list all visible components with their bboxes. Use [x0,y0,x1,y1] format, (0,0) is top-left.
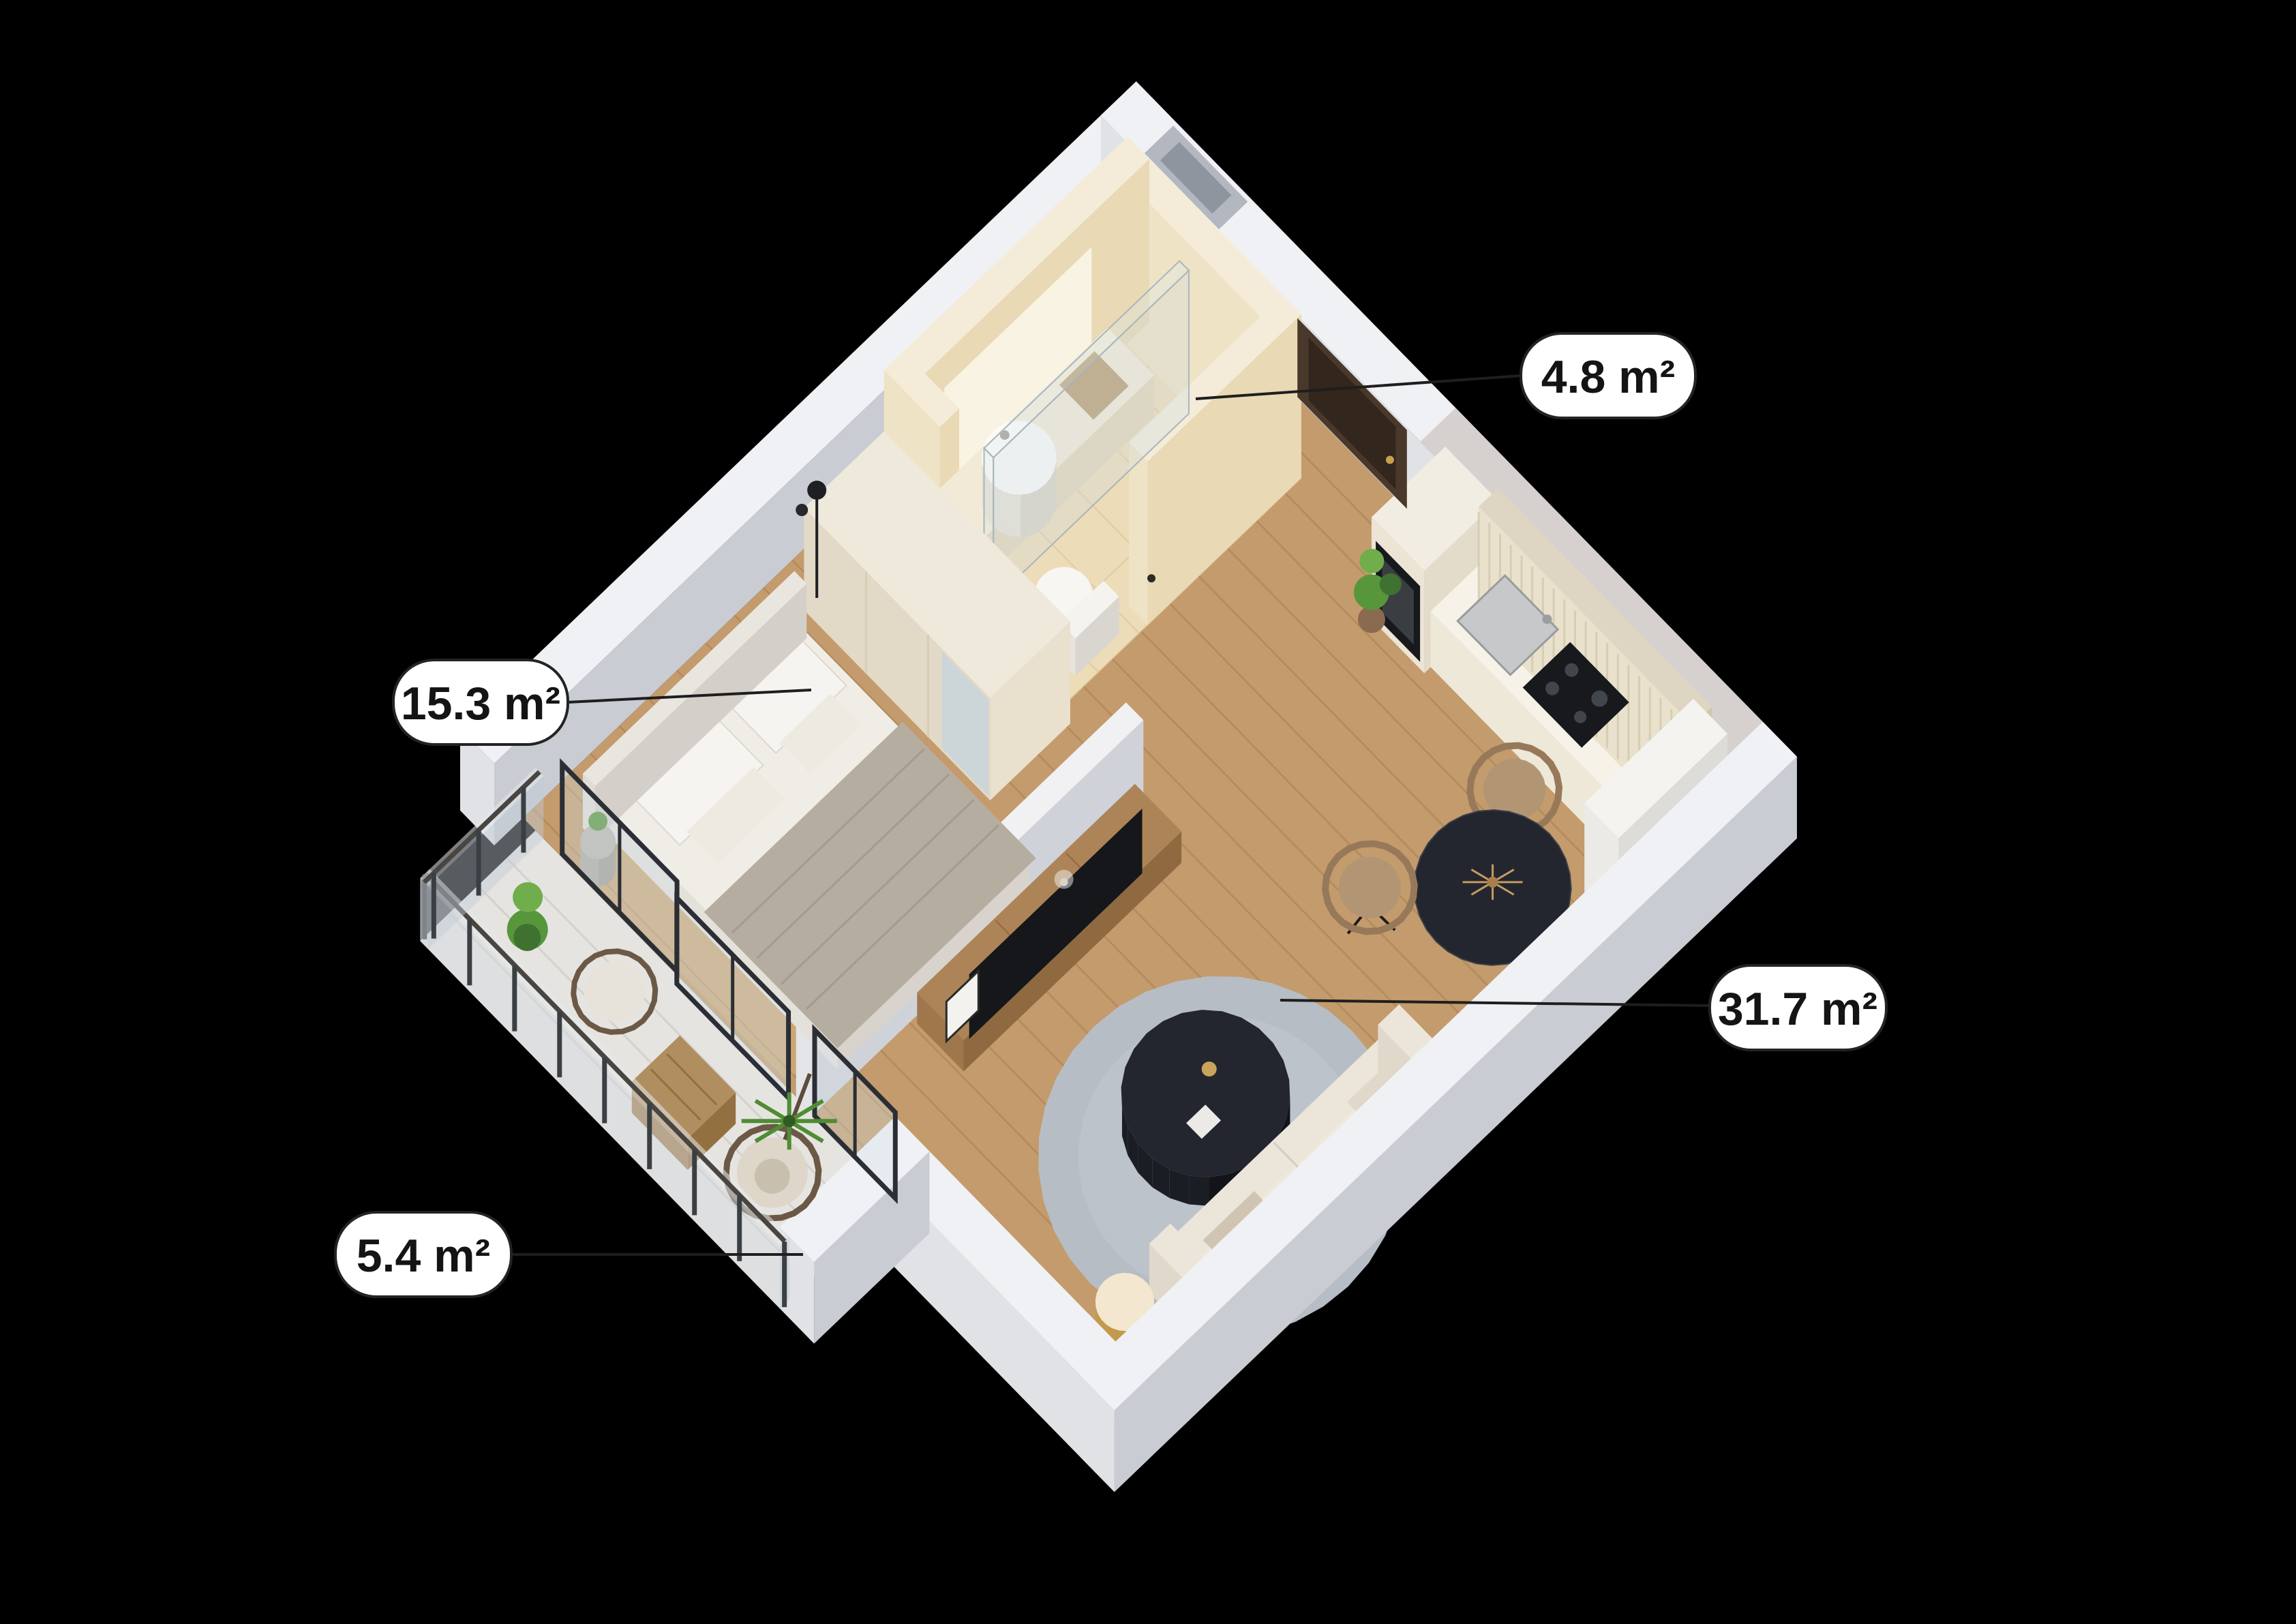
floorplan-scene [420,81,1797,1492]
label-text-living: 31.7 m² [1718,983,1877,1035]
label-text-balcony: 5.4 m² [357,1230,491,1282]
label-text-bathroom: 4.8 m² [1541,351,1676,403]
floorplan-canvas: 4.8 m² 15.3 m² 31.7 m² 5.4 m² [0,0,2296,1624]
label-text-bedroom: 15.3 m² [401,678,560,730]
